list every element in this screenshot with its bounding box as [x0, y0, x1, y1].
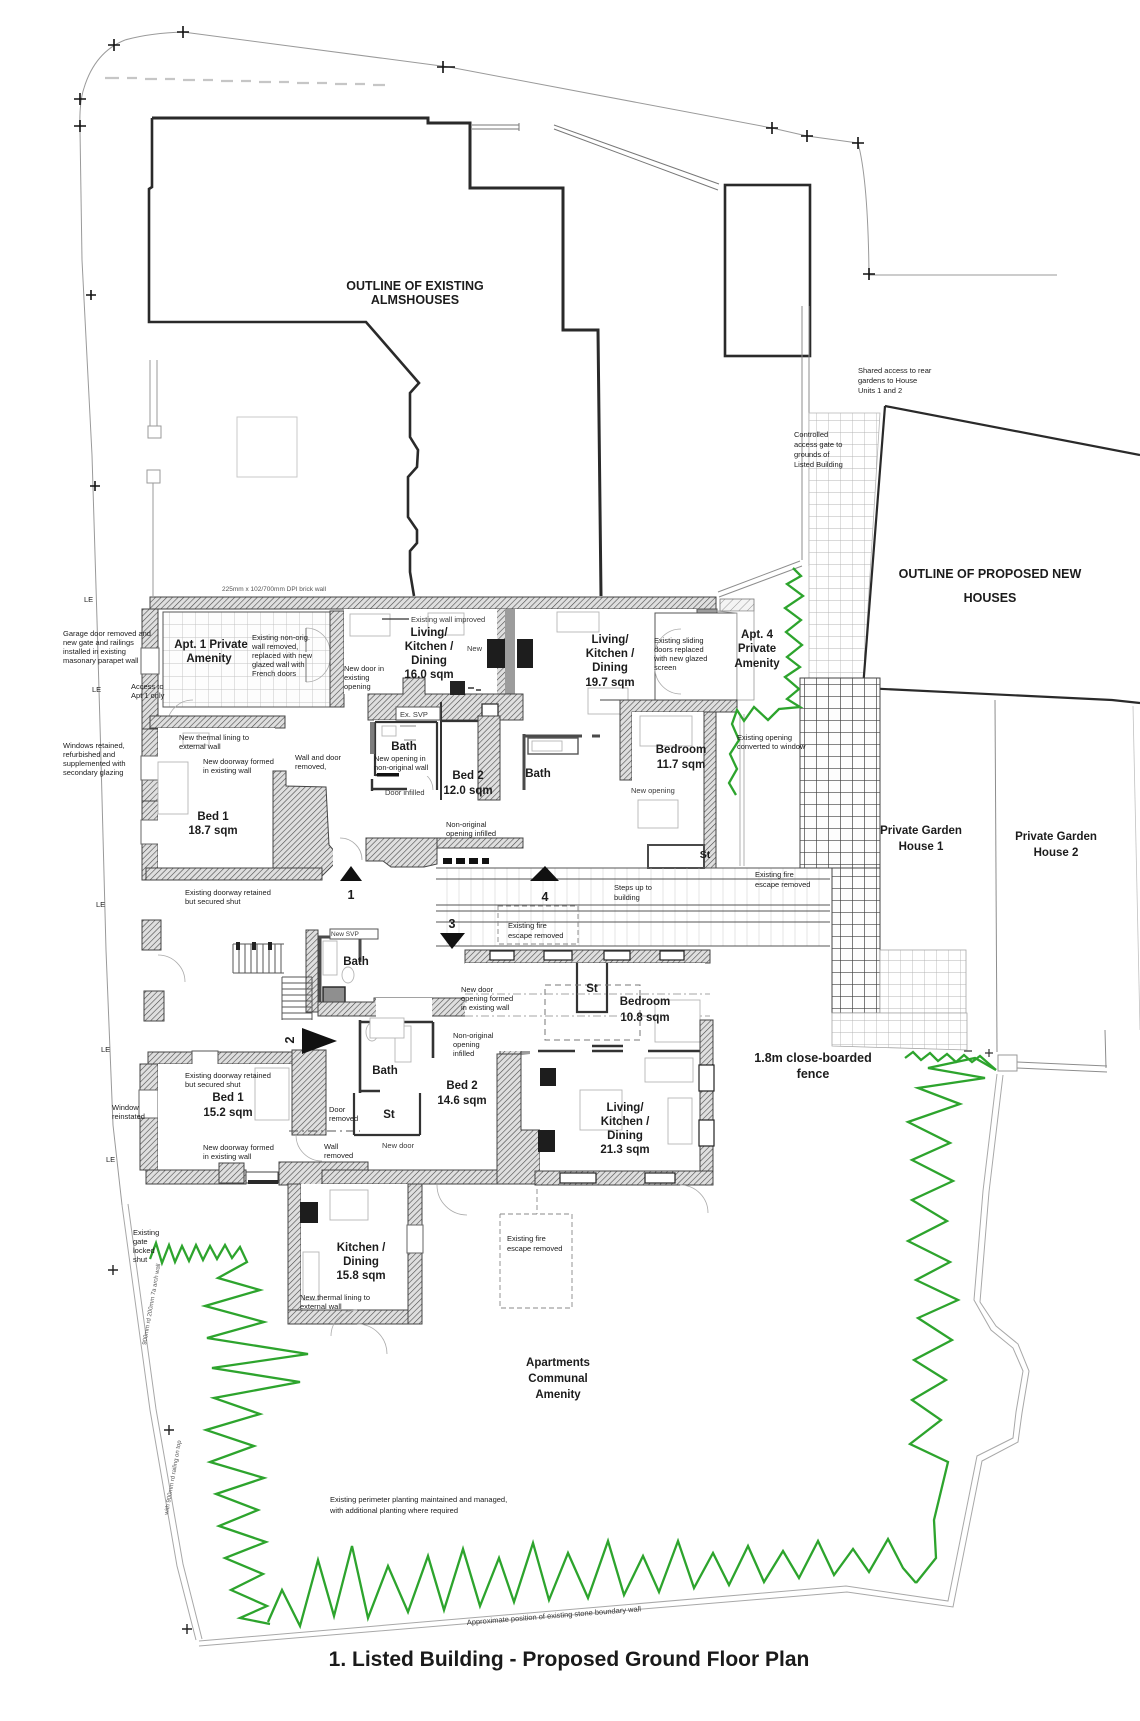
svg-text:LE: LE	[84, 595, 93, 604]
svg-text:Private Garden: Private Garden	[1015, 831, 1097, 843]
svg-text:New door in: New door in	[344, 664, 384, 673]
svg-text:Existing wall improved: Existing wall improved	[411, 615, 485, 624]
svg-text:Existing: Existing	[133, 1228, 159, 1237]
svg-text:Amenity: Amenity	[734, 658, 780, 670]
svg-text:Bed 1: Bed 1	[212, 1092, 244, 1104]
svg-text:gardens to House: gardens to House	[858, 376, 917, 385]
svg-text:Existing fire: Existing fire	[507, 1234, 546, 1243]
svg-text:Communal: Communal	[528, 1373, 587, 1385]
svg-text:Kitchen /: Kitchen /	[337, 1242, 386, 1254]
svg-text:Existing doorway retained: Existing doorway retained	[185, 888, 271, 897]
svg-text:Private Garden: Private Garden	[880, 825, 962, 837]
svg-text:Living/: Living/	[591, 634, 629, 646]
svg-text:11.7 sqm: 11.7 sqm	[657, 759, 706, 771]
svg-text:replaced with new: replaced with new	[252, 651, 313, 660]
svg-text:St: St	[586, 983, 598, 995]
svg-text:non-original wall: non-original wall	[374, 763, 429, 772]
svg-text:Dining: Dining	[411, 655, 447, 667]
svg-text:in existing wall: in existing wall	[203, 1152, 252, 1161]
svg-text:14.6 sqm: 14.6 sqm	[437, 1095, 486, 1107]
svg-text:House 1: House 1	[899, 841, 944, 853]
svg-text:4: 4	[542, 890, 549, 904]
svg-text:15.2 sqm: 15.2 sqm	[203, 1107, 252, 1119]
svg-text:reinstated: reinstated	[112, 1112, 145, 1121]
svg-text:Dining: Dining	[607, 1130, 643, 1142]
svg-text:10.8 sqm: 10.8 sqm	[620, 1012, 669, 1024]
svg-text:Bedroom: Bedroom	[656, 744, 706, 756]
svg-text:Kitchen /: Kitchen /	[601, 1116, 650, 1128]
svg-text:doors replaced: doors replaced	[654, 645, 704, 654]
svg-text:LE: LE	[92, 685, 101, 694]
svg-text:St: St	[383, 1109, 395, 1121]
svg-text:OUTLINE OF EXISTING: OUTLINE OF EXISTING	[346, 279, 484, 293]
svg-text:1.8m close-boarded: 1.8m close-boarded	[754, 1051, 871, 1065]
svg-text:removed,: removed,	[295, 762, 326, 771]
svg-text:Kitchen /: Kitchen /	[405, 641, 454, 653]
svg-text:building: building	[614, 893, 640, 902]
svg-text:St: St	[700, 849, 711, 861]
svg-text:Existing doorway retained: Existing doorway retained	[185, 1071, 271, 1080]
svg-text:18.7 sqm: 18.7 sqm	[188, 825, 237, 837]
svg-text:wall removed,: wall removed,	[251, 642, 298, 651]
svg-text:Units 1 and 2: Units 1 and 2	[858, 386, 902, 395]
svg-text:12.0 sqm: 12.0 sqm	[443, 785, 492, 797]
svg-text:Apt 1 only: Apt 1 only	[131, 691, 165, 700]
svg-text:Amenity: Amenity	[186, 653, 232, 665]
svg-text:Bath: Bath	[343, 956, 369, 968]
svg-text:New thermal lining to: New thermal lining to	[300, 1293, 370, 1302]
svg-text:New door: New door	[382, 1141, 415, 1150]
svg-text:external wall: external wall	[300, 1302, 342, 1311]
svg-text:Amenity: Amenity	[535, 1389, 581, 1401]
svg-text:fence: fence	[797, 1067, 830, 1081]
svg-text:Window: Window	[112, 1103, 139, 1112]
svg-text:Wall and door: Wall and door	[295, 753, 341, 762]
svg-text:Bath: Bath	[391, 741, 417, 753]
svg-text:Ex. SVP: Ex. SVP	[400, 710, 428, 719]
svg-text:removed: removed	[329, 1114, 358, 1123]
svg-text:Bed 1: Bed 1	[197, 811, 229, 823]
svg-text:Door: Door	[329, 1105, 346, 1114]
svg-text:Listed Building: Listed Building	[794, 460, 843, 469]
svg-text:infilled: infilled	[453, 1049, 474, 1058]
svg-text:glazed wall with: glazed wall with	[252, 660, 305, 669]
svg-text:1: 1	[348, 888, 355, 902]
svg-text:Living/: Living/	[606, 1102, 644, 1114]
svg-text:but secured shut: but secured shut	[185, 897, 241, 906]
svg-text:New opening in: New opening in	[374, 754, 426, 763]
svg-text:New: New	[467, 644, 483, 653]
svg-text:existing: existing	[344, 673, 369, 682]
svg-text:16.0 sqm: 16.0 sqm	[404, 669, 453, 681]
svg-text:House 2: House 2	[1034, 847, 1079, 859]
svg-text:installed in existing: installed in existing	[63, 647, 126, 656]
svg-text:LE: LE	[106, 1155, 115, 1164]
svg-text:Non-original: Non-original	[453, 1031, 494, 1040]
svg-text:Existing opening: Existing opening	[737, 733, 792, 742]
svg-text:ALMSHOUSES: ALMSHOUSES	[371, 293, 459, 307]
svg-text:Bath: Bath	[372, 1065, 398, 1077]
svg-text:refurbished and: refurbished and	[63, 750, 115, 759]
svg-text:Bedroom: Bedroom	[620, 996, 670, 1008]
svg-text:New doorway formed: New doorway formed	[203, 1143, 274, 1152]
svg-text:Bed 2: Bed 2	[452, 770, 483, 782]
svg-text:Door infilled: Door infilled	[385, 788, 425, 797]
svg-text:but secured shut: but secured shut	[185, 1080, 241, 1089]
svg-text:in existing wall: in existing wall	[203, 766, 252, 775]
svg-text:Garage door removed and: Garage door removed and	[63, 629, 151, 638]
svg-text:15.8 sqm: 15.8 sqm	[336, 1270, 385, 1282]
svg-text:1. Listed Building - Proposed: 1. Listed Building - Proposed Ground Flo…	[329, 1648, 810, 1671]
svg-text:Bed 2: Bed 2	[446, 1080, 477, 1092]
svg-text:with additional planting where: with additional planting where required	[329, 1506, 458, 1515]
svg-text:with new glazed: with new glazed	[653, 654, 707, 663]
svg-text:opening: opening	[344, 682, 371, 691]
svg-text:Private: Private	[738, 643, 776, 655]
svg-text:225mm x 102/700mm DPI brick wa: 225mm x 102/700mm DPI brick wall	[222, 586, 327, 593]
svg-text:access gate to: access gate to	[794, 440, 842, 449]
svg-text:New doorway formed: New doorway formed	[203, 757, 274, 766]
svg-text:Windows retained,: Windows retained,	[63, 741, 125, 750]
svg-text:Apt. 1 Private: Apt. 1 Private	[174, 639, 248, 651]
svg-text:escape removed: escape removed	[755, 880, 810, 889]
svg-text:removed: removed	[324, 1151, 353, 1160]
svg-text:opening formed: opening formed	[461, 994, 513, 1003]
svg-text:LE: LE	[101, 1045, 110, 1054]
svg-text:New thermal lining to: New thermal lining to	[179, 733, 249, 742]
svg-text:new gate and railings: new gate and railings	[63, 638, 134, 647]
svg-text:locked: locked	[133, 1246, 155, 1255]
svg-text:Bath: Bath	[525, 768, 551, 780]
svg-text:secondary glazing: secondary glazing	[63, 768, 123, 777]
svg-text:New opening: New opening	[631, 786, 675, 795]
svg-text:HOUSES: HOUSES	[964, 591, 1017, 605]
svg-text:Dining: Dining	[592, 662, 628, 674]
svg-text:escape removed: escape removed	[507, 1244, 562, 1253]
svg-text:opening infilled: opening infilled	[446, 829, 496, 838]
svg-text:shut: shut	[133, 1255, 148, 1264]
svg-text:OUTLINE OF PROPOSED NEW: OUTLINE OF PROPOSED NEW	[899, 567, 1082, 581]
svg-text:opening: opening	[453, 1040, 480, 1049]
svg-text:Kitchen /: Kitchen /	[586, 648, 635, 660]
svg-text:gate: gate	[133, 1237, 148, 1246]
svg-text:Existing perimeter planting ma: Existing perimeter planting maintained a…	[330, 1495, 507, 1504]
svg-text:Existing fire: Existing fire	[508, 921, 547, 930]
svg-text:Non-original: Non-original	[446, 820, 487, 829]
svg-text:Living/: Living/	[410, 627, 448, 639]
svg-text:Existing fire: Existing fire	[755, 870, 794, 879]
svg-text:Steps up to: Steps up to	[614, 883, 652, 892]
svg-text:21.3 sqm: 21.3 sqm	[600, 1144, 649, 1156]
svg-text:French doors: French doors	[252, 669, 296, 678]
svg-text:19.7 sqm: 19.7 sqm	[585, 677, 634, 689]
svg-text:Dining: Dining	[343, 1256, 379, 1268]
svg-text:converted to window: converted to window	[737, 742, 806, 751]
svg-text:masonary parapet wall: masonary parapet wall	[63, 656, 139, 665]
svg-text:screen: screen	[654, 663, 677, 672]
svg-text:Wall: Wall	[324, 1142, 339, 1151]
svg-text:Existing non-orig.: Existing non-orig.	[252, 633, 310, 642]
svg-text:3: 3	[449, 917, 456, 931]
svg-text:New SVP: New SVP	[331, 931, 359, 938]
svg-text:Apartments: Apartments	[526, 1357, 590, 1369]
svg-text:Shared access to rear: Shared access to rear	[858, 366, 932, 375]
svg-text:Access to: Access to	[131, 682, 164, 691]
svg-text:LE: LE	[96, 900, 105, 909]
svg-text:Existing sliding: Existing sliding	[654, 636, 704, 645]
svg-text:escape removed: escape removed	[508, 931, 563, 940]
svg-text:supplemented with: supplemented with	[63, 759, 126, 768]
svg-text:grounds of: grounds of	[794, 450, 830, 459]
svg-text:Controlled: Controlled	[794, 430, 828, 439]
svg-text:in existing wall: in existing wall	[461, 1003, 510, 1012]
svg-text:Apt. 4: Apt. 4	[741, 629, 774, 641]
svg-text:external wall: external wall	[179, 742, 221, 751]
svg-text:New door: New door	[461, 985, 494, 994]
svg-text:2: 2	[283, 1036, 297, 1043]
